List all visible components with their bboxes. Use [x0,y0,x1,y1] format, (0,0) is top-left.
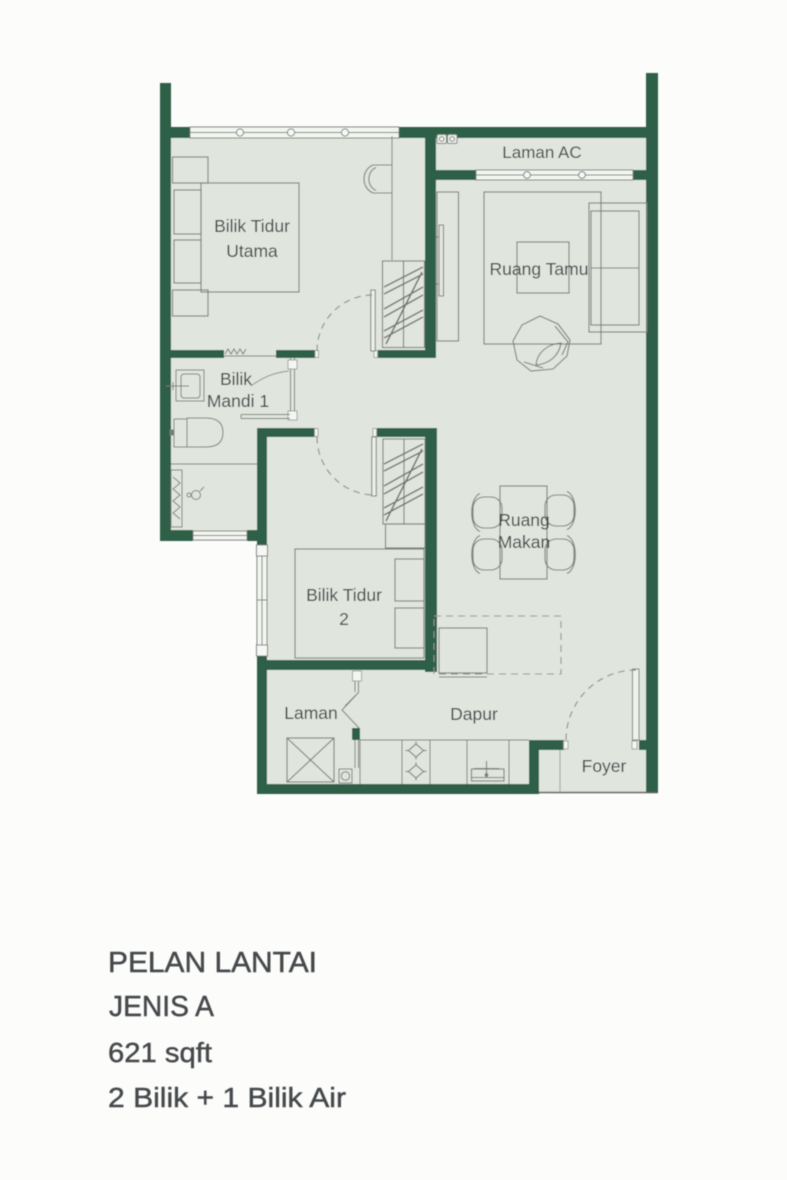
svg-text:Dapur: Dapur [450,704,498,724]
svg-text:Bilik: Bilik [220,369,252,389]
svg-text:Bilik Tidur: Bilik Tidur [214,216,290,236]
svg-text:Laman AC: Laman AC [502,143,581,162]
svg-text:Utama: Utama [226,241,278,261]
svg-text:JENIS A: JENIS A [109,991,215,1023]
svg-text:PELAN LANTAI: PELAN LANTAI [108,947,317,979]
svg-text:621 sqft: 621 sqft [108,1037,212,1068]
svg-text:Ruang Tamu: Ruang Tamu [490,259,589,279]
svg-text:Ruang: Ruang [498,510,550,530]
svg-text:Bilik Tidur: Bilik Tidur [306,585,382,605]
svg-text:Laman: Laman [284,703,338,723]
svg-text:Makan: Makan [498,532,551,552]
svg-text:2 Bilik + 1 Bilik Air: 2 Bilik + 1 Bilik Air [108,1082,346,1113]
svg-text:Foyer: Foyer [582,756,627,776]
svg-text:Mandi 1: Mandi 1 [207,391,269,411]
svg-text:2: 2 [339,609,349,629]
